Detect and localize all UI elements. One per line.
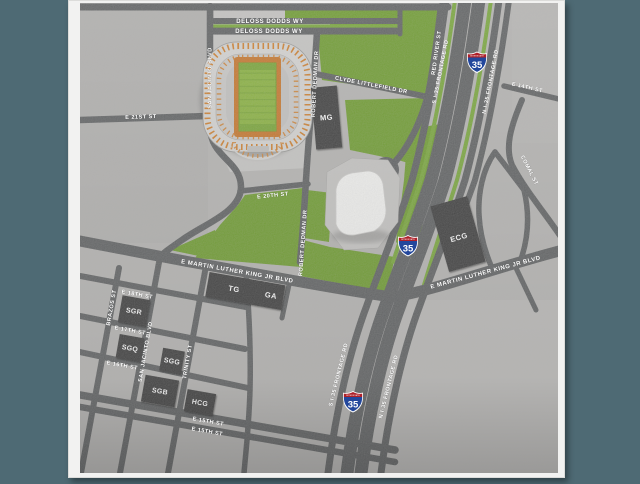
campus-parking-map[interactable]: MG ECG TG GA SGR SGQ [80, 3, 558, 473]
map-frame: MG ECG TG GA SGR SGQ [68, 0, 565, 478]
street-label-e21st: E 21ST ST [125, 114, 157, 121]
i35-number: 35 [348, 399, 359, 410]
i35-number: 35 [472, 60, 483, 71]
interstate-text: INTERSTATE [346, 394, 360, 397]
page-background: { "map": { "colors": { "background": "#4… [0, 0, 640, 484]
interstate-text: INTERSTATE [470, 54, 484, 57]
street-label-deloss-2: DELOSS DODDS WY [235, 29, 303, 35]
interstate-text: INTERSTATE [401, 238, 415, 241]
map-canvas: MG ECG TG GA SGR SGQ [80, 3, 558, 473]
street-label-san-jacinto-n: SAN JACINTO BLVD [208, 47, 214, 108]
street-label-deloss-1: DELOSS DODDS WY [236, 19, 304, 25]
i35-number: 35 [403, 243, 414, 254]
